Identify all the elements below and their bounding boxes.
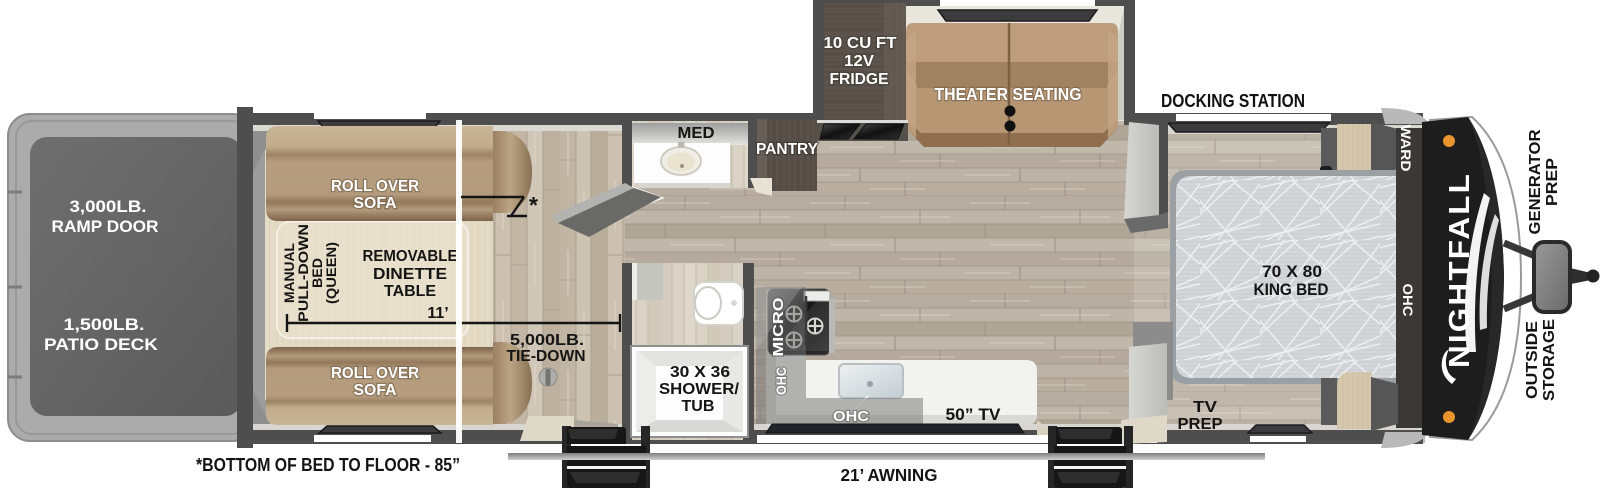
svg-text:10 CU FT: 10 CU FT — [824, 35, 897, 52]
svg-text:TUB: TUB — [682, 398, 715, 415]
svg-text:70 X 80: 70 X 80 — [1262, 262, 1322, 281]
svg-text:BED: BED — [310, 258, 325, 288]
svg-text:DINETTE: DINETTE — [373, 266, 447, 283]
svg-text:TV: TV — [1193, 399, 1218, 416]
svg-text:NIGHTFALL: NIGHTFALL — [1444, 172, 1476, 368]
svg-text:OHC: OHC — [1400, 284, 1416, 317]
svg-text:5,000LB.: 5,000LB. — [510, 332, 584, 349]
svg-text:12V: 12V — [844, 53, 874, 70]
svg-text:SHOWER/: SHOWER/ — [659, 381, 740, 398]
svg-text:MANUAL: MANUAL — [282, 243, 297, 303]
svg-text:MICRO: MICRO — [770, 297, 787, 356]
svg-text:STORAGE: STORAGE — [1541, 319, 1558, 401]
svg-text:KING BED: KING BED — [1254, 280, 1329, 299]
svg-text:OHC: OHC — [833, 409, 870, 425]
svg-text:11’: 11’ — [427, 305, 448, 322]
svg-text:ROLL OVER: ROLL OVER — [331, 365, 419, 382]
svg-text:GENERATOR: GENERATOR — [1527, 130, 1544, 235]
svg-text:PREP: PREP — [1544, 158, 1561, 206]
svg-text:ROLL OVER: ROLL OVER — [331, 178, 419, 195]
svg-text:PULL-DOWN: PULL-DOWN — [296, 224, 311, 322]
svg-text:50” TV: 50” TV — [946, 405, 1002, 424]
svg-text:OUTSIDE: OUTSIDE — [1524, 321, 1541, 399]
svg-text:*BOTTOM OF BED TO FLOOR - 85”: *BOTTOM OF BED TO FLOOR - 85” — [196, 455, 460, 475]
svg-text:SOFA: SOFA — [354, 195, 397, 212]
svg-text:DOCKING STATION: DOCKING STATION — [1161, 91, 1305, 111]
svg-text:OHC: OHC — [774, 367, 789, 395]
svg-text:TIE-DOWN: TIE-DOWN — [507, 348, 586, 365]
svg-text:*: * — [529, 192, 538, 218]
svg-text:MED: MED — [678, 125, 715, 142]
svg-text:PATIO DECK: PATIO DECK — [44, 335, 159, 354]
svg-text:THEATER SEATING: THEATER SEATING — [935, 84, 1082, 104]
svg-text:FRIDGE: FRIDGE — [830, 71, 889, 88]
svg-text:3,000LB.: 3,000LB. — [70, 197, 147, 216]
svg-text:PREP: PREP — [1178, 416, 1223, 433]
svg-text:TABLE: TABLE — [384, 283, 436, 300]
svg-text:1,500LB.: 1,500LB. — [64, 315, 145, 334]
svg-text:RAMP DOOR: RAMP DOOR — [52, 217, 159, 236]
svg-text:WARD: WARD — [1398, 125, 1414, 172]
svg-text:21’ AWNING: 21’ AWNING — [841, 465, 938, 485]
svg-text:(QUEEN): (QUEEN) — [324, 242, 339, 304]
svg-text:REMOVABLE: REMOVABLE — [363, 248, 458, 265]
svg-text:30 X 36: 30 X 36 — [670, 364, 730, 381]
svg-text:PANTRY: PANTRY — [756, 141, 818, 158]
svg-text:SOFA: SOFA — [354, 382, 397, 399]
